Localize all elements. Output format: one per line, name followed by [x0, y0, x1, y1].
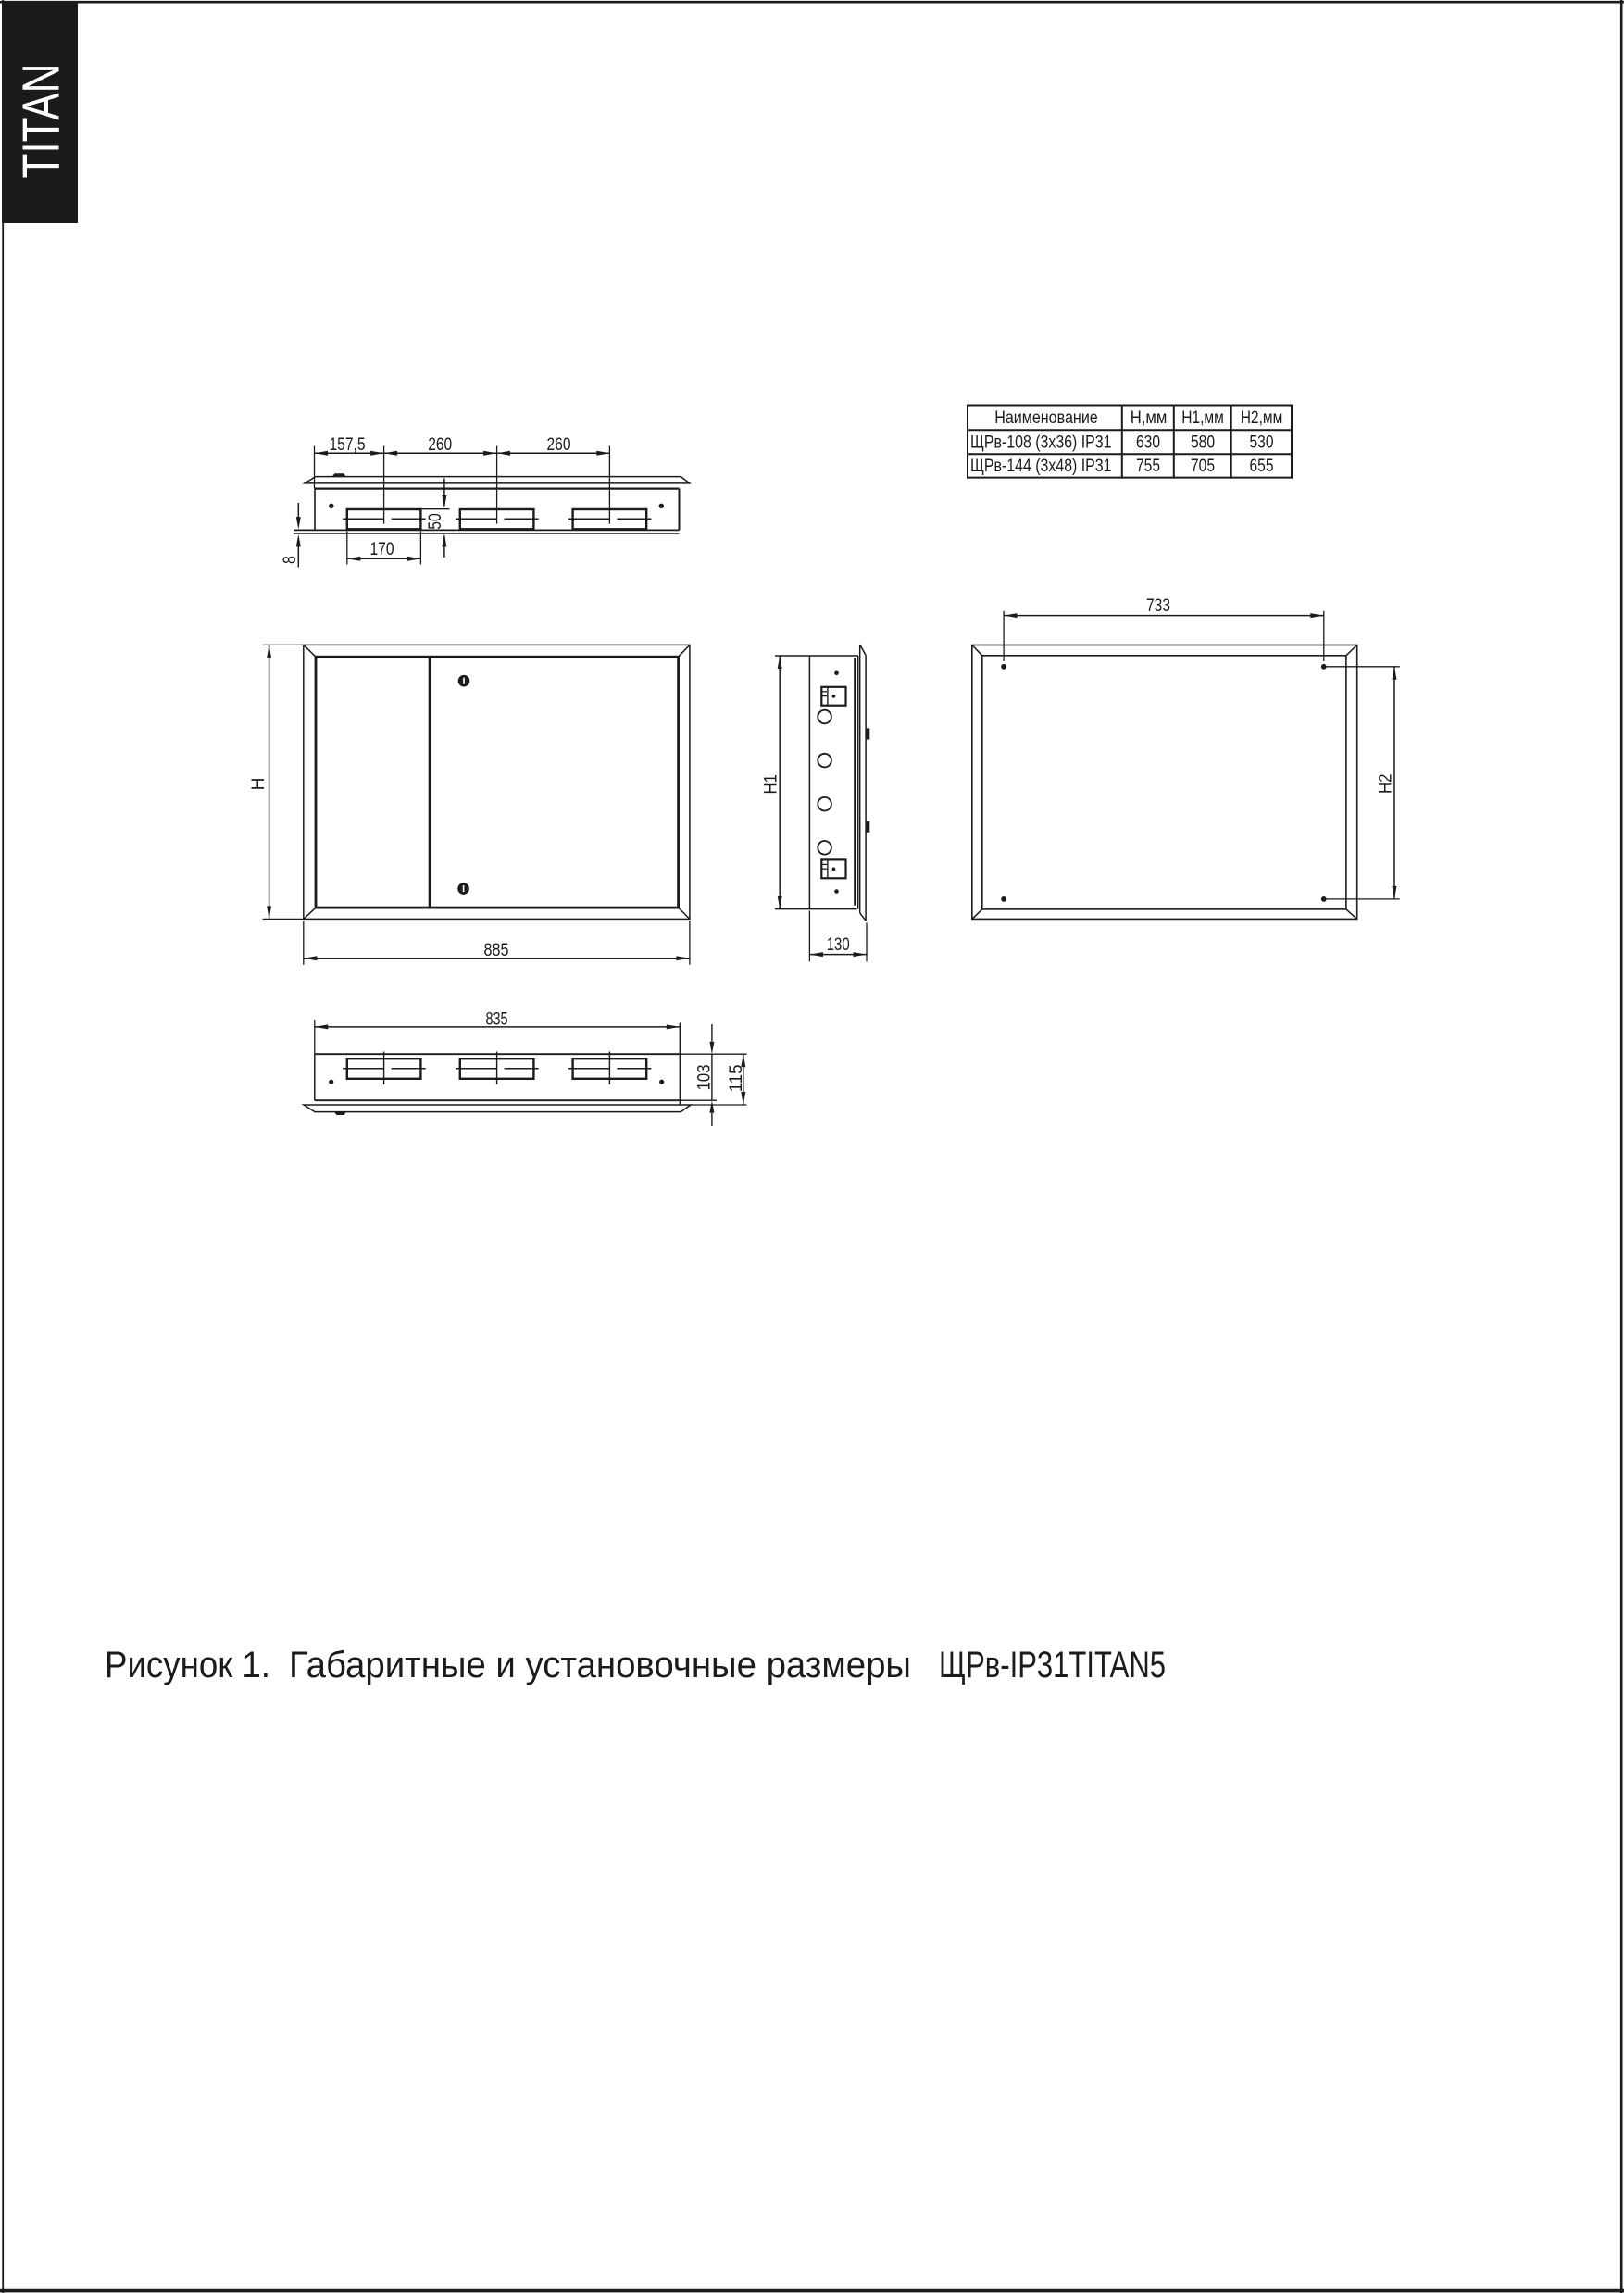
svg-text:Н,мм: Н,мм	[1131, 408, 1168, 428]
svg-text:Рисунок 1.: Рисунок 1.	[105, 1645, 270, 1685]
svg-text:Н2: Н2	[1377, 774, 1396, 795]
svg-text:733: 733	[1146, 596, 1170, 616]
svg-text:50: 50	[426, 513, 445, 529]
svg-text:Габаритные и установочные разм: Габаритные и установочные размеры	[289, 1645, 911, 1685]
svg-text:260: 260	[547, 435, 571, 455]
svg-text:130: 130	[827, 935, 850, 955]
svg-text:103: 103	[694, 1064, 714, 1090]
svg-text:TITAN: TITAN	[12, 64, 71, 179]
svg-text:Н: Н	[249, 778, 269, 791]
svg-text:8: 8	[281, 556, 300, 564]
svg-text:530: 530	[1250, 432, 1274, 452]
svg-text:Н2,мм: Н2,мм	[1241, 408, 1283, 428]
svg-text:630: 630	[1136, 432, 1160, 452]
svg-text:170: 170	[370, 540, 394, 559]
svg-text:835: 835	[486, 1009, 508, 1029]
svg-text:Н1,мм: Н1,мм	[1181, 408, 1224, 428]
svg-text:755: 755	[1136, 457, 1160, 476]
svg-text:ЩРв-144 (3х48) IР31: ЩРв-144 (3х48) IР31	[970, 457, 1112, 476]
svg-text:580: 580	[1191, 432, 1215, 452]
svg-text:ЩРв-IP31TITAN5: ЩРв-IP31TITAN5	[939, 1645, 1166, 1685]
svg-text:Наименование: Наименование	[994, 408, 1098, 428]
svg-text:115: 115	[727, 1064, 746, 1092]
svg-text:705: 705	[1191, 457, 1215, 476]
svg-text:ЩРв-108 (3х36) IР31: ЩРв-108 (3х36) IР31	[970, 432, 1112, 452]
svg-text:885: 885	[484, 941, 509, 960]
svg-text:260: 260	[428, 435, 452, 455]
svg-text:157,5: 157,5	[330, 435, 366, 455]
svg-text:Н1: Н1	[762, 774, 781, 795]
svg-text:655: 655	[1250, 457, 1274, 476]
